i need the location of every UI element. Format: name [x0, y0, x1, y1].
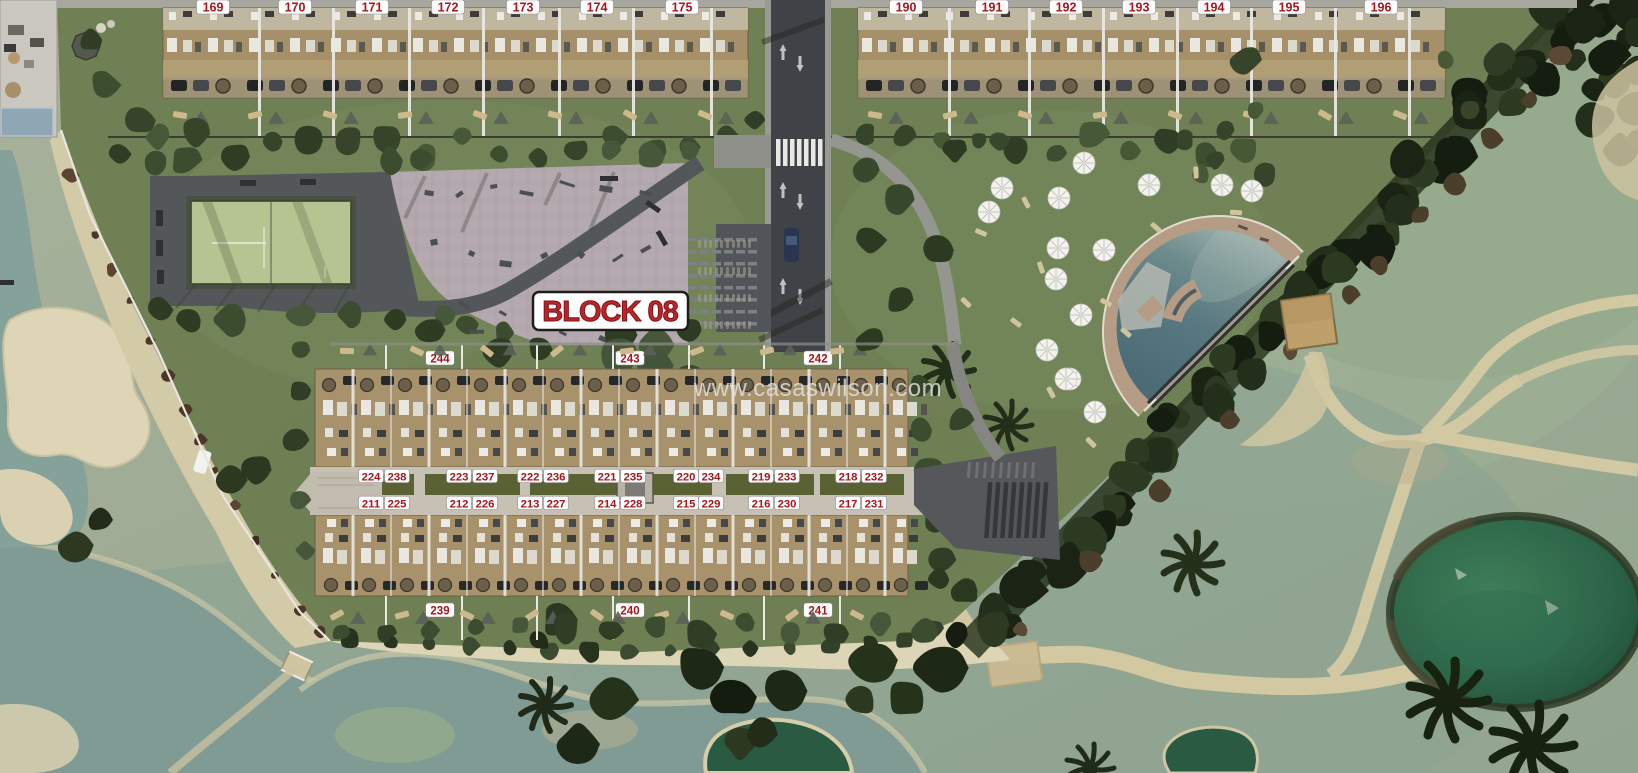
svg-text:170: 170 — [285, 1, 306, 15]
svg-text:171: 171 — [362, 1, 383, 15]
svg-text:233: 233 — [778, 471, 797, 483]
svg-text:235: 235 — [624, 471, 643, 483]
svg-text:240: 240 — [620, 606, 639, 618]
svg-text:220: 220 — [677, 471, 696, 483]
svg-text:225: 225 — [388, 498, 407, 510]
svg-text:228: 228 — [624, 498, 643, 510]
svg-text:231: 231 — [865, 498, 884, 510]
svg-text:215: 215 — [677, 498, 696, 510]
svg-text:195: 195 — [1279, 1, 1300, 15]
svg-text:239: 239 — [430, 606, 449, 618]
svg-text:175: 175 — [672, 1, 693, 15]
svg-text:191: 191 — [982, 1, 1003, 15]
svg-text:227: 227 — [547, 498, 566, 510]
svg-text:238: 238 — [388, 471, 407, 483]
svg-text:218: 218 — [839, 471, 858, 483]
svg-text:169: 169 — [203, 1, 224, 15]
svg-text:212: 212 — [450, 498, 469, 510]
svg-text:www.casaswilson.com: www.casaswilson.com — [693, 375, 942, 402]
svg-text:237: 237 — [476, 471, 495, 483]
svg-text:173: 173 — [513, 1, 534, 15]
svg-text:213: 213 — [521, 498, 540, 510]
svg-text:172: 172 — [438, 1, 459, 15]
svg-text:219: 219 — [752, 471, 771, 483]
svg-text:BLOCK 08: BLOCK 08 — [542, 296, 678, 328]
svg-text:229: 229 — [702, 498, 721, 510]
svg-text:221: 221 — [598, 471, 617, 483]
svg-text:193: 193 — [1129, 1, 1150, 15]
svg-text:242: 242 — [808, 354, 827, 366]
svg-text:194: 194 — [1204, 1, 1225, 15]
svg-text:226: 226 — [476, 498, 495, 510]
svg-text:232: 232 — [865, 471, 884, 483]
svg-text:214: 214 — [598, 498, 618, 510]
svg-text:217: 217 — [839, 498, 858, 510]
svg-text:223: 223 — [450, 471, 469, 483]
svg-text:243: 243 — [620, 354, 639, 366]
svg-text:222: 222 — [521, 471, 540, 483]
svg-text:196: 196 — [1371, 1, 1392, 15]
svg-text:216: 216 — [752, 498, 771, 510]
svg-text:234: 234 — [702, 471, 722, 483]
svg-text:236: 236 — [547, 471, 566, 483]
svg-text:174: 174 — [587, 1, 608, 15]
svg-text:192: 192 — [1056, 1, 1077, 15]
svg-text:224: 224 — [362, 471, 382, 483]
svg-text:190: 190 — [896, 1, 917, 15]
svg-text:230: 230 — [778, 498, 797, 510]
svg-text:211: 211 — [362, 498, 380, 510]
